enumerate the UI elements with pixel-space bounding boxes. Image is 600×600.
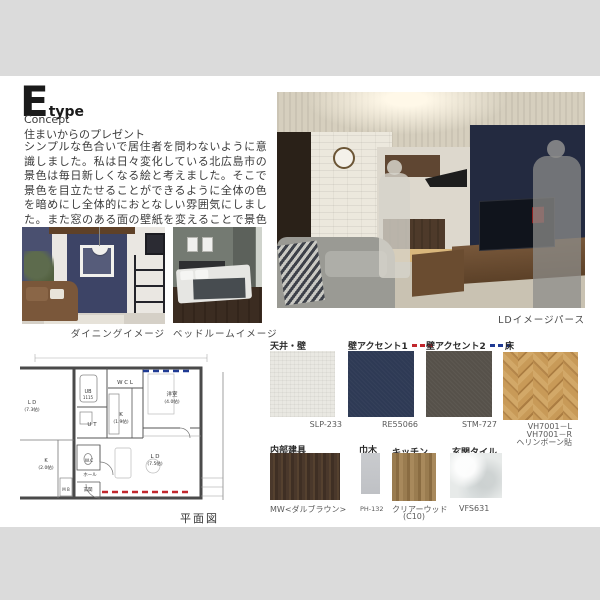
ghost-body: [533, 156, 581, 308]
concept-heading: Concept: [24, 113, 70, 126]
material-label-floor: 床: [505, 339, 514, 352]
coffee-table: [412, 249, 464, 296]
floor-plan: W C L 洋室 (4.0帖) UB 1115 U T K (1.9帖) L D…: [20, 350, 250, 510]
room-size-neighbor-k: (2.0帖): [38, 464, 53, 471]
shelf-board: [136, 301, 163, 303]
room-label-neighbor-ld: L D: [28, 400, 36, 406]
material-code-entrance-tile: VFS631: [459, 504, 489, 513]
material-code-baseboard: PH-132: [360, 505, 384, 513]
dining-caption: ダイニングイメージ: [22, 326, 165, 340]
material-code-interior-door: MW<ダルブラウン>: [270, 504, 346, 515]
material-swatch-kitchen: [392, 453, 436, 501]
sofa-throw: [277, 241, 325, 306]
bedroom-caption: ベッドルームイメージ: [173, 326, 262, 340]
sofa-pillow: [50, 289, 64, 299]
shelf-board: [136, 285, 163, 287]
room-label-mb: M B: [62, 487, 70, 492]
black-shelf: [134, 255, 165, 319]
bed-throw: [193, 278, 246, 300]
sofa-symbol: [115, 448, 131, 478]
room-size-neighbor-ld: (7.3帖): [24, 406, 39, 413]
room-label-k: K: [119, 412, 123, 418]
ghost-figure-right: [529, 140, 585, 308]
material-swatch-floor: [503, 352, 578, 420]
ld-caption: LDイメージパース: [277, 312, 585, 326]
material-swatch-entrance-tile: [450, 453, 502, 498]
ghost-figure-center: [375, 160, 417, 278]
room-label-wc: W.C: [85, 458, 94, 464]
room-size-k: (1.9帖): [113, 418, 128, 425]
plan-caption: 平面図: [180, 510, 219, 526]
herringbone-column: [563, 352, 578, 420]
wc-box: [77, 445, 100, 470]
sofa: [22, 281, 78, 321]
room-label-ld: L D: [150, 454, 159, 460]
herringbone-column: [518, 352, 533, 420]
door-arc: [180, 428, 190, 438]
wall-frame: [202, 237, 213, 252]
material-swatch-ceiling-wall: [270, 351, 335, 417]
dining-photo: [22, 227, 165, 324]
material-code-floor-3: ヘリンボーン貼: [503, 437, 572, 448]
ld-render: [277, 92, 585, 308]
bedroom-photo: [173, 227, 262, 323]
kitchen-counter: [109, 394, 119, 434]
shelf-board: [136, 269, 163, 271]
room-label-ut: U T: [87, 422, 97, 428]
material-code-kitchen-sub: (C10): [392, 512, 436, 521]
material-code-wall-accent1: RE55066: [348, 420, 418, 429]
material-swatch-wall-accent1: [348, 351, 414, 417]
material-swatch-baseboard: [361, 453, 380, 494]
room-label-bedroom: 洋室: [166, 390, 178, 398]
room-label-wcl: W C L: [117, 380, 134, 386]
material-code-ceiling-wall: SLP-233: [270, 420, 342, 429]
wall-clock: [333, 147, 355, 169]
wall-frame: [187, 237, 198, 252]
herringbone-column: [533, 352, 548, 420]
room-label-hall: ホール: [83, 472, 97, 478]
room-label-neighbor-k: K: [44, 458, 48, 464]
pillow: [180, 270, 194, 280]
dining-small-window: [145, 233, 165, 255]
door-arc: [100, 462, 113, 475]
bed: [176, 264, 252, 303]
material-swatch-interior-door: [270, 453, 340, 500]
material-swatch-wall-accent2: [426, 351, 492, 417]
room-label-entrance: 玄関: [84, 486, 93, 493]
herringbone-column: [503, 352, 518, 420]
herringbone-column: [548, 352, 563, 420]
room-size-ld: (7.5帖): [147, 460, 162, 467]
room-size-bedroom: (4.0帖): [164, 398, 179, 405]
ghost-body: [379, 173, 410, 278]
pendant-cord: [99, 227, 100, 247]
room-size-ub: 1115: [83, 395, 94, 400]
pillow: [195, 269, 209, 279]
presentation-sheet: Etype Concept 住まいからのプレゼント シンプルな色合いで居住者を問…: [0, 76, 600, 527]
dining-beam: [49, 227, 135, 234]
sofa-cushion: [26, 287, 48, 301]
material-code-wall-accent2: STM-727: [426, 420, 497, 429]
